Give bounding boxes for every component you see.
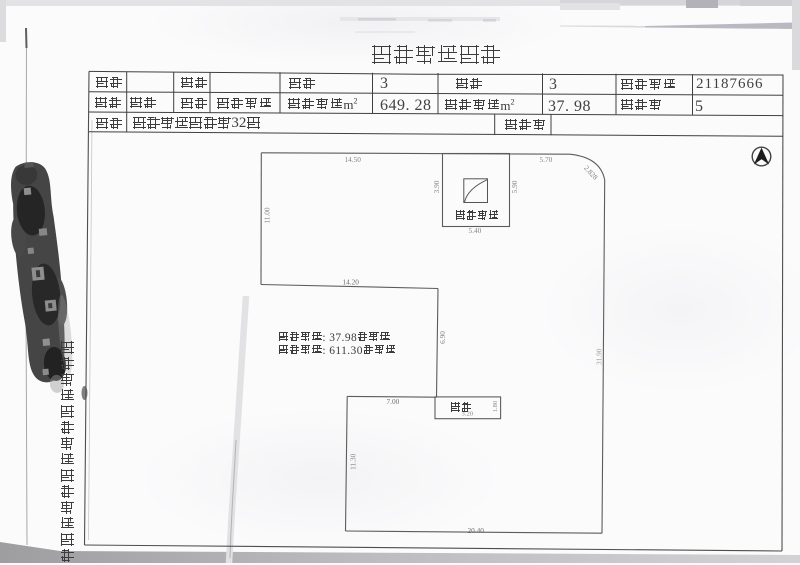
svg-text:14.50: 14.50 bbox=[345, 155, 362, 164]
svg-text:20.40: 20.40 bbox=[468, 526, 485, 535]
svg-text:5.40: 5.40 bbox=[469, 226, 482, 235]
svg-text:5.90: 5.90 bbox=[510, 180, 519, 193]
svg-text:11.30: 11.30 bbox=[348, 453, 357, 469]
svg-text:5.70: 5.70 bbox=[540, 155, 553, 164]
svg-text:3.90: 3.90 bbox=[432, 180, 441, 193]
svg-text:7.00: 7.00 bbox=[387, 397, 400, 406]
svg-text:1.80: 1.80 bbox=[492, 400, 499, 412]
svg-text:6.90: 6.90 bbox=[438, 331, 447, 344]
svg-text:11.00: 11.00 bbox=[262, 207, 271, 223]
svg-text:31.90: 31.90 bbox=[595, 348, 604, 365]
svg-text:14.20: 14.20 bbox=[343, 278, 360, 287]
